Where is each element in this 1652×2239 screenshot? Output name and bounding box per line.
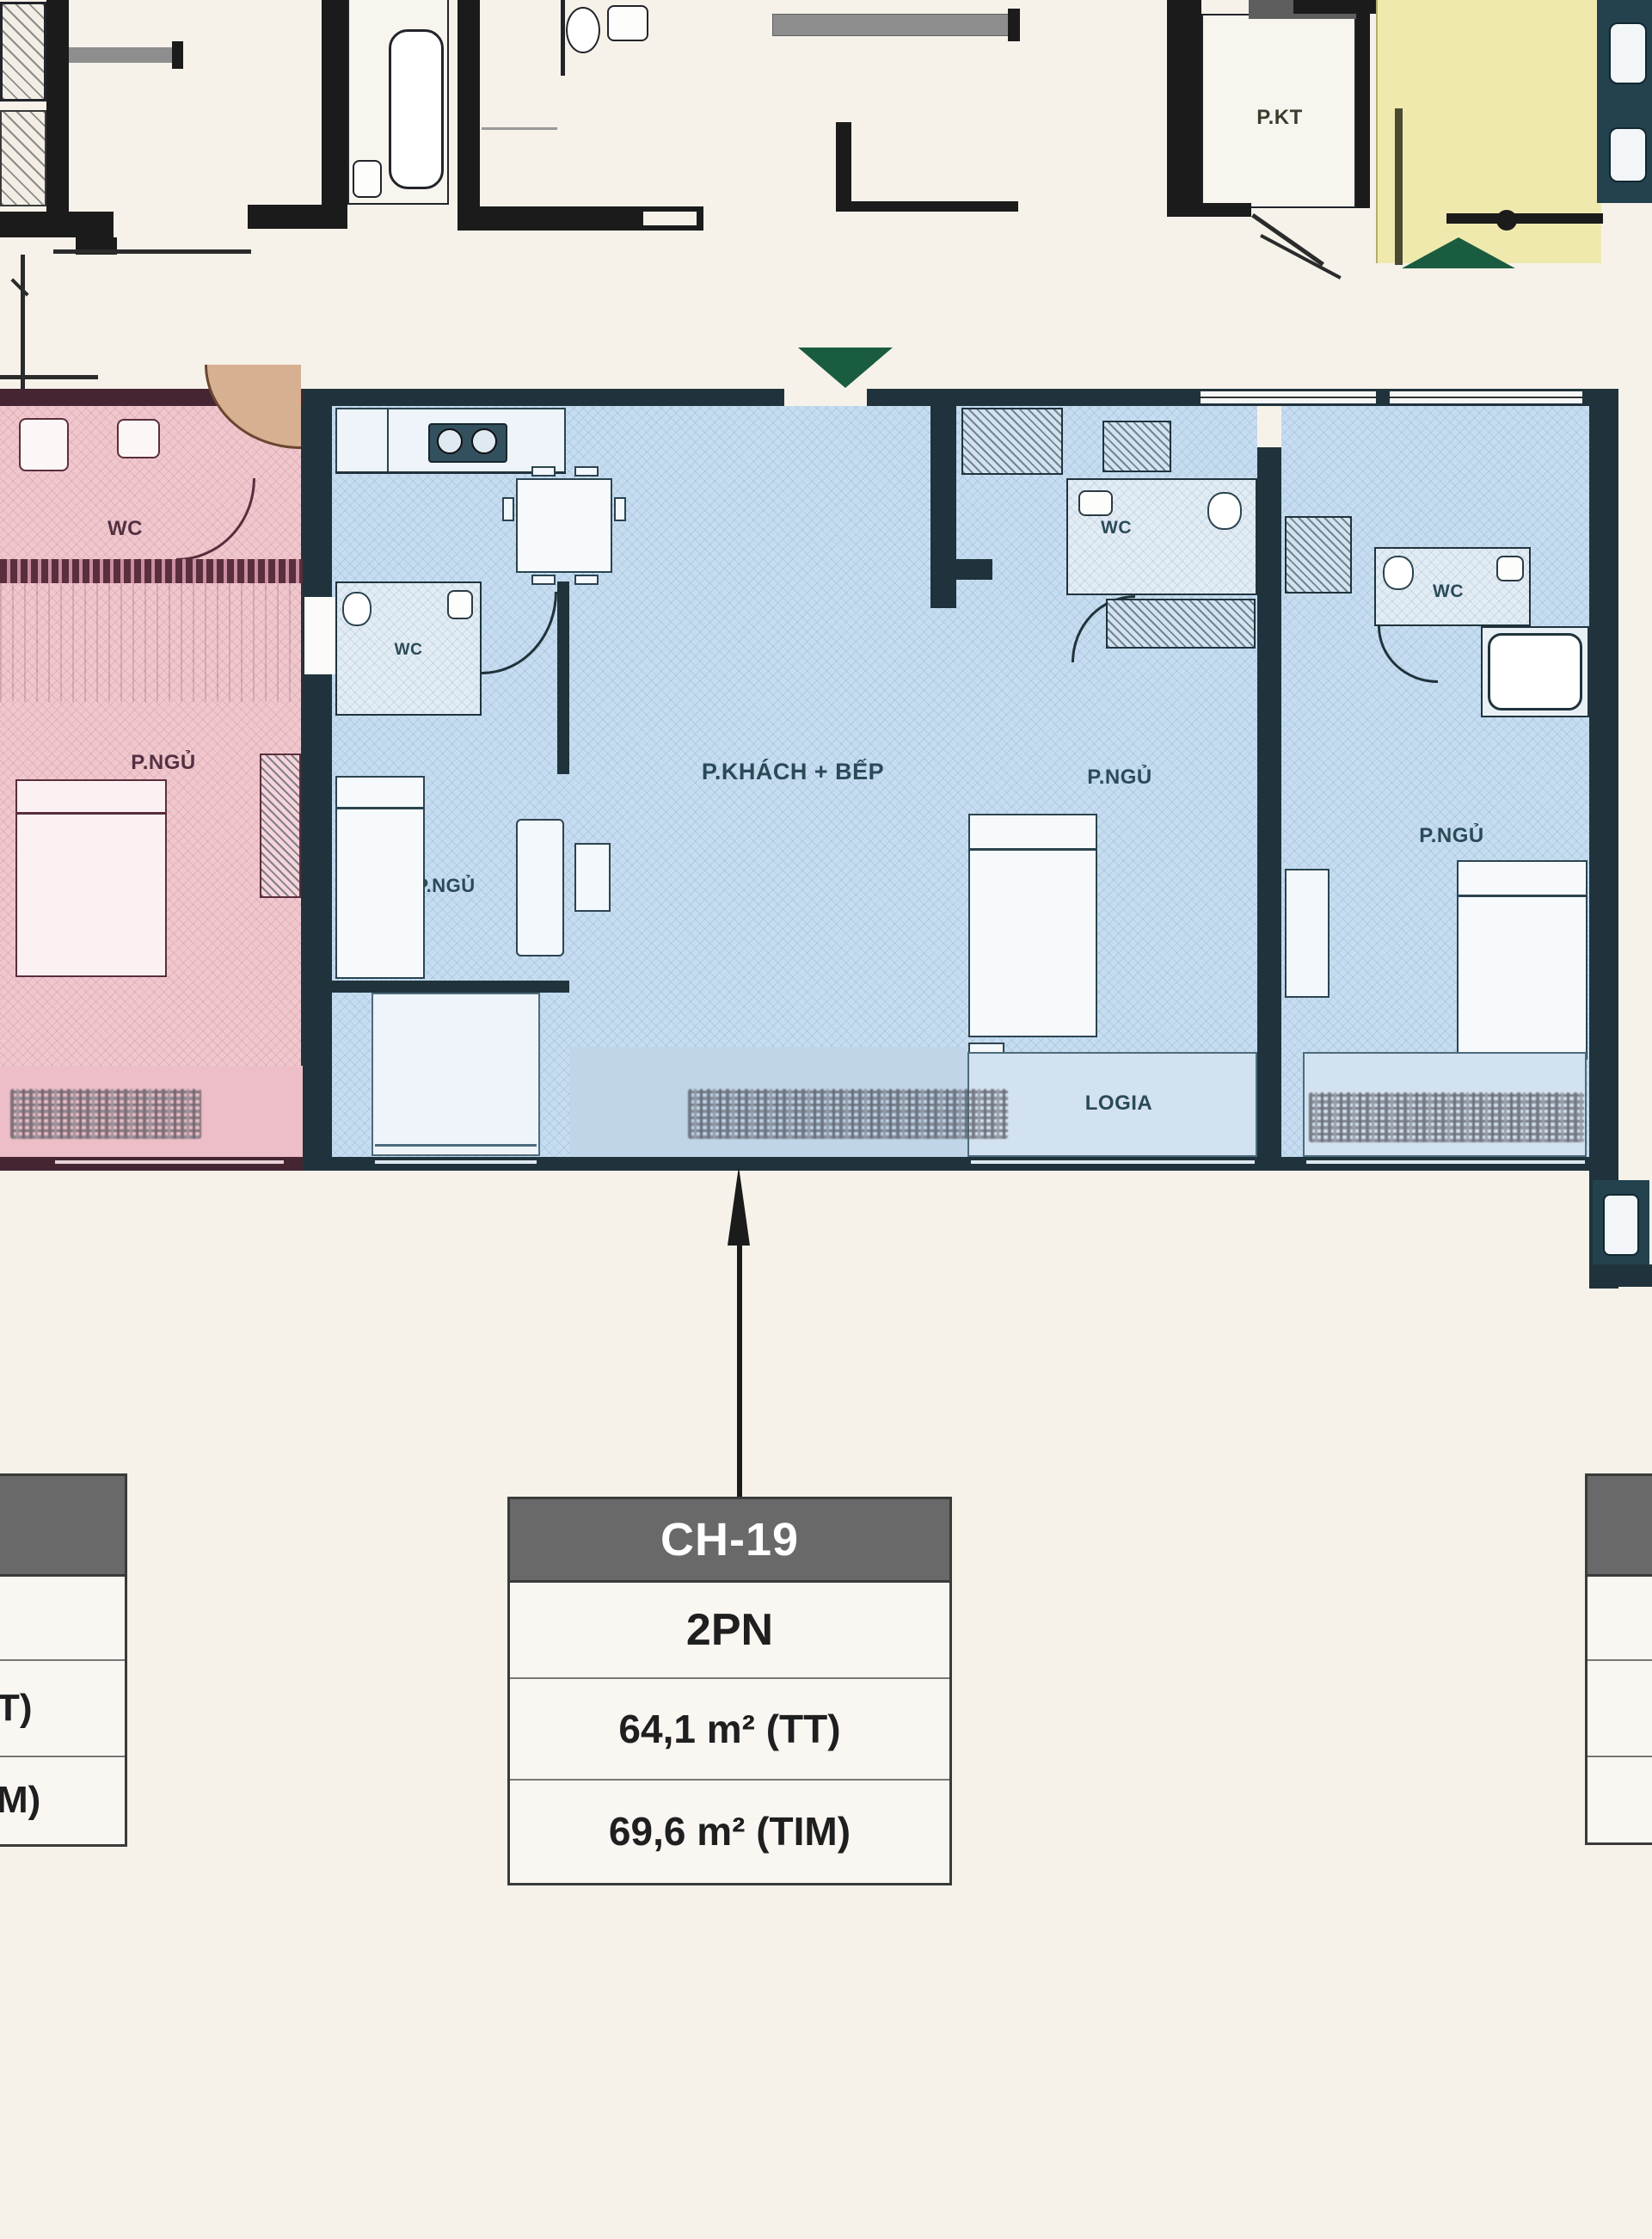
bedroom3-label: P.NGỦ — [1391, 824, 1512, 848]
green-triangle-up-icon — [1402, 237, 1515, 268]
logia-label: LOGIA — [1054, 1091, 1183, 1116]
window-line — [1201, 397, 1376, 398]
table-row — [1588, 1661, 1652, 1757]
pin-stem — [737, 1244, 742, 1498]
bed-pillow-line — [968, 848, 1097, 851]
dresser-icon — [1285, 869, 1330, 998]
sink-icon — [117, 419, 160, 458]
wall — [836, 122, 851, 210]
table-row-bedroom-count: 2PN — [510, 1583, 949, 1679]
sink-icon — [353, 160, 382, 198]
chair-icon — [502, 497, 514, 521]
wall-bottom-blue — [303, 1157, 1589, 1171]
area-built-text: 69,6 m² (TIM) — [609, 1808, 851, 1855]
railing-line — [971, 1160, 1255, 1164]
info-table-right-partial — [1585, 1473, 1652, 1845]
washer-drum-icon — [437, 428, 463, 454]
table-header-unit-code: CH-19 — [510, 1499, 949, 1583]
floor-plan: P.KT WC P.NGỦ — [0, 0, 1652, 2239]
logia-railing — [375, 1144, 537, 1147]
toilet-icon — [566, 7, 600, 53]
bed-icon — [968, 814, 1097, 1037]
wall — [248, 205, 347, 229]
wall — [561, 0, 565, 76]
info-table-ch19: CH-19 2PN 64,1 m² (TT) 69,6 m² (TIM) — [507, 1497, 952, 1885]
blurred-unit-code — [1309, 1092, 1584, 1142]
wall-cap — [1589, 1264, 1652, 1287]
wc3-label: WC — [1416, 580, 1481, 604]
chair-icon — [614, 497, 626, 521]
sink-icon — [607, 5, 648, 41]
wall-entry-closet — [930, 400, 956, 608]
info-table-left-partial: T) M) — [0, 1473, 127, 1847]
wall-logia-divider — [332, 981, 569, 993]
blurred-unit-code — [10, 1089, 201, 1139]
bed-icon — [1457, 860, 1588, 1060]
dimension-tick — [10, 278, 28, 296]
sink-icon — [1496, 556, 1524, 581]
floor-stripes — [0, 583, 303, 702]
wall — [1201, 203, 1251, 217]
chair-icon — [574, 575, 599, 585]
corridor-tick — [1008, 9, 1020, 41]
table-header — [0, 1476, 125, 1577]
bed-pillow-line — [335, 807, 425, 809]
wall-stub — [956, 559, 992, 580]
wc-label-pink: WC — [76, 514, 175, 544]
toilet-icon — [19, 418, 69, 471]
area-carpet-text: 64,1 m² (TT) — [618, 1706, 840, 1752]
table-row-area-built: 69,6 m² (TIM) — [510, 1781, 949, 1882]
bed-icon — [15, 779, 167, 977]
technical-room-label: P.KT — [1238, 105, 1321, 131]
stove-burner-icon — [471, 428, 497, 454]
toilet-icon — [342, 592, 372, 626]
stair-shaft — [0, 2, 46, 101]
wall — [458, 0, 480, 229]
wardrobe-icon — [260, 754, 301, 898]
toilet-icon — [1383, 556, 1414, 590]
unit-code-text: CH-19 — [660, 1513, 799, 1566]
wall — [836, 201, 1018, 212]
table-row — [1588, 1577, 1652, 1661]
partial-area-text: T) — [0, 1687, 33, 1730]
bed-pillow-line — [15, 812, 167, 815]
closet-icon — [1285, 516, 1352, 594]
wall-line — [482, 127, 557, 130]
wall-bottom-pink — [0, 1157, 303, 1171]
wc1-label: WC — [370, 638, 447, 662]
dimension-line — [1260, 234, 1342, 280]
door-leaf — [1251, 213, 1324, 266]
wall — [1167, 0, 1201, 217]
stair-flight — [0, 110, 46, 206]
table-row — [0, 1577, 125, 1661]
bedroom-count-text: 2PN — [686, 1604, 773, 1656]
table-row — [1588, 1757, 1652, 1842]
bedroom2-label: P.NGỦ — [1059, 766, 1180, 790]
unit-yellow-fragment — [1376, 0, 1601, 263]
wc2-label: WC — [1085, 516, 1147, 540]
window-line — [1390, 397, 1582, 398]
railing-line — [375, 1160, 537, 1164]
sink-icon — [447, 590, 473, 619]
bed-pillow-line — [1457, 895, 1588, 897]
toilet-icon — [1609, 22, 1647, 84]
toilet-icon — [1207, 492, 1242, 530]
corridor-tick — [172, 41, 183, 69]
blurred-unit-code — [688, 1089, 1008, 1139]
logia-left — [372, 993, 540, 1156]
shaft-icon — [1102, 421, 1171, 472]
wall-line — [53, 249, 251, 254]
wall-party-left — [301, 406, 332, 1159]
wardrobe-icon — [1106, 599, 1256, 649]
coffee-table-icon — [574, 843, 611, 912]
neighbor-fixture — [1603, 1194, 1639, 1256]
table-row-area-carpet: 64,1 m² (TT) — [510, 1679, 949, 1781]
wall — [322, 0, 347, 227]
green-triangle-down-icon — [798, 348, 893, 388]
wall-hatched — [0, 559, 303, 583]
door-opening — [643, 212, 697, 225]
bathtub-icon — [1488, 633, 1582, 710]
bathtub-icon — [389, 29, 444, 189]
bedroom-label-pink: P.NGỦ — [95, 750, 232, 776]
wall — [1446, 213, 1603, 224]
closet-icon — [961, 408, 1063, 475]
table-row-area-built-partial: M) — [0, 1757, 125, 1843]
chair-icon — [531, 466, 556, 477]
railing-line — [55, 1160, 284, 1164]
entrance-opening — [784, 389, 867, 406]
dimension-line — [0, 375, 98, 379]
chair-icon — [531, 575, 556, 585]
sink-icon — [1609, 127, 1647, 182]
wall-party-right — [1257, 447, 1281, 1158]
wall — [0, 212, 114, 237]
sofa-icon — [516, 819, 564, 956]
wall — [46, 0, 69, 212]
pin-arrow-icon — [728, 1166, 750, 1246]
corridor-line-mid — [772, 14, 1015, 36]
dining-table-icon — [516, 478, 612, 573]
railing-line — [1306, 1160, 1585, 1164]
partial-area-text: M) — [0, 1779, 40, 1822]
wall — [1356, 14, 1370, 208]
wall-interior — [557, 581, 569, 774]
sink-icon — [1078, 490, 1113, 516]
table-row-area-carpet-partial: T) — [0, 1661, 125, 1757]
table-header — [1588, 1476, 1652, 1577]
counter-line — [387, 408, 389, 473]
chair-icon — [574, 466, 599, 477]
living-kitchen-label: P.KHÁCH + BẾP — [655, 757, 930, 786]
wall-right-column — [1589, 392, 1618, 1289]
